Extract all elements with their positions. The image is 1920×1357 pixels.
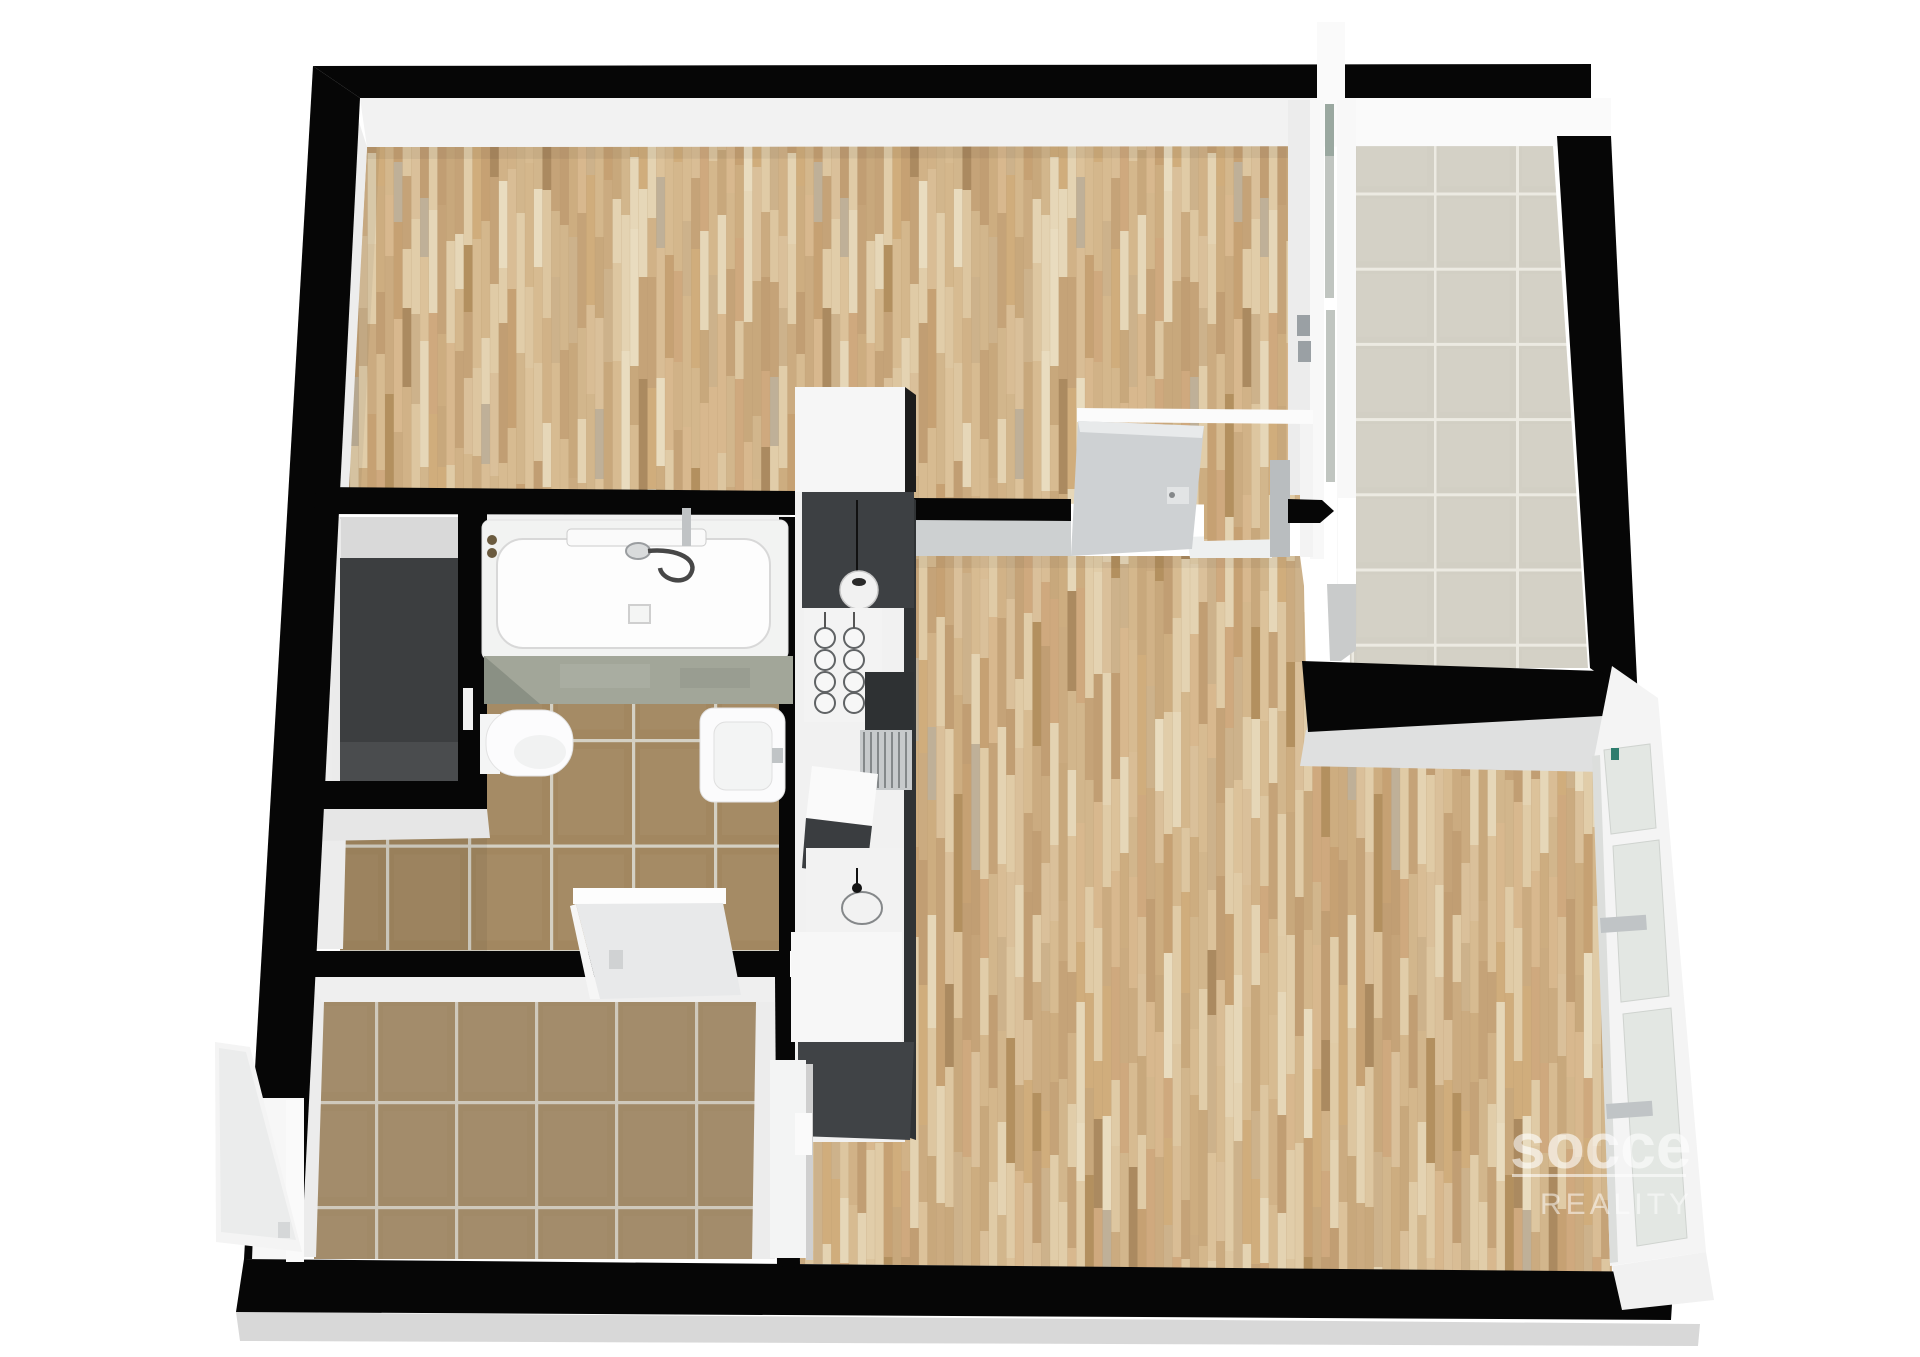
- svg-text:REALITY: REALITY: [1540, 1188, 1693, 1221]
- svg-text:socce: socce: [1510, 1110, 1691, 1182]
